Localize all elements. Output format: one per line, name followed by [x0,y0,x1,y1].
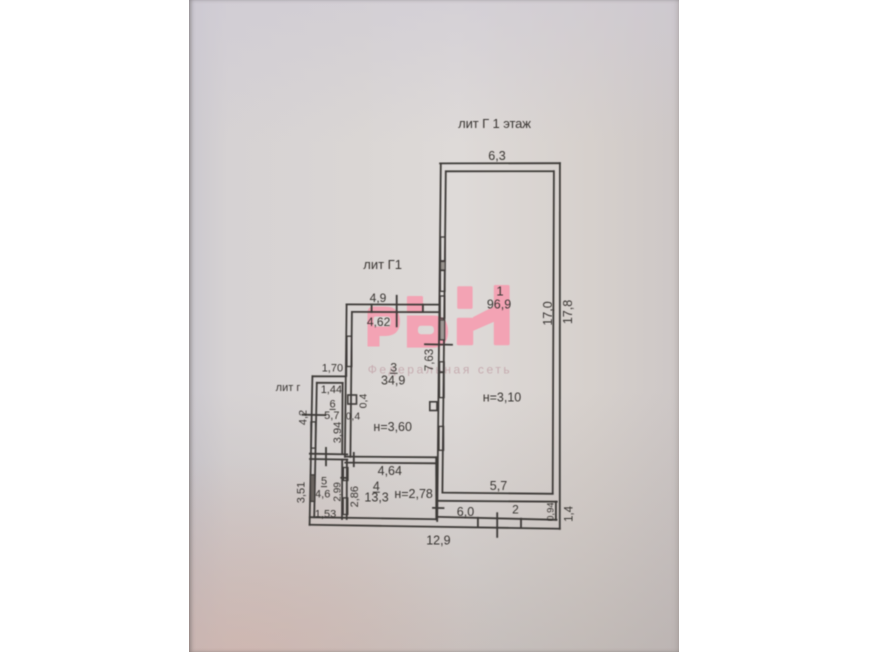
svg-text:5,7: 5,7 [490,479,507,493]
svg-text:3,51: 3,51 [296,482,308,503]
svg-text:6,3: 6,3 [488,149,505,163]
svg-text:12,9: 12,9 [426,534,450,548]
svg-text:96,9: 96,9 [487,298,511,312]
svg-text:н=3,10: н=3,10 [483,391,522,405]
svg-text:4,2: 4,2 [298,410,310,425]
svg-text:4,9: 4,9 [370,291,387,305]
svg-text:0,4: 0,4 [357,394,369,409]
svg-text:0,94: 0,94 [546,502,557,520]
svg-text:4,6: 4,6 [315,488,330,500]
svg-text:лит г: лит г [276,382,301,394]
svg-text:1,53: 1,53 [315,509,336,521]
svg-text:17,8: 17,8 [561,300,575,324]
svg-text:1,4: 1,4 [563,505,575,522]
svg-text:0,4: 0,4 [346,410,361,422]
svg-text:2,99: 2,99 [332,482,343,502]
svg-text:лит Г1: лит Г1 [363,257,402,272]
svg-text:7,63: 7,63 [424,349,436,371]
svg-text:3: 3 [390,361,397,375]
svg-text:17,0: 17,0 [541,301,555,325]
svg-text:лит Г 1 этаж: лит Г 1 этаж [458,116,531,131]
svg-text:1,70: 1,70 [322,362,343,374]
svg-text:5: 5 [321,476,327,488]
svg-text:3,94: 3,94 [332,422,344,443]
svg-text:н=2,78: н=2,78 [394,487,433,501]
svg-text:6: 6 [330,399,336,411]
svg-text:5,7: 5,7 [324,410,339,422]
svg-text:4,62: 4,62 [367,315,391,329]
svg-text:13,3: 13,3 [364,491,388,505]
svg-text:4,64: 4,64 [378,464,402,478]
svg-text:1,44: 1,44 [321,384,342,396]
svg-text:6,0: 6,0 [457,505,474,519]
svg-text:34,9: 34,9 [381,374,405,388]
svg-text:2,86: 2,86 [349,486,361,507]
svg-text:н=3,60: н=3,60 [373,420,412,434]
svg-text:1: 1 [496,284,503,299]
svg-text:2: 2 [512,503,519,517]
